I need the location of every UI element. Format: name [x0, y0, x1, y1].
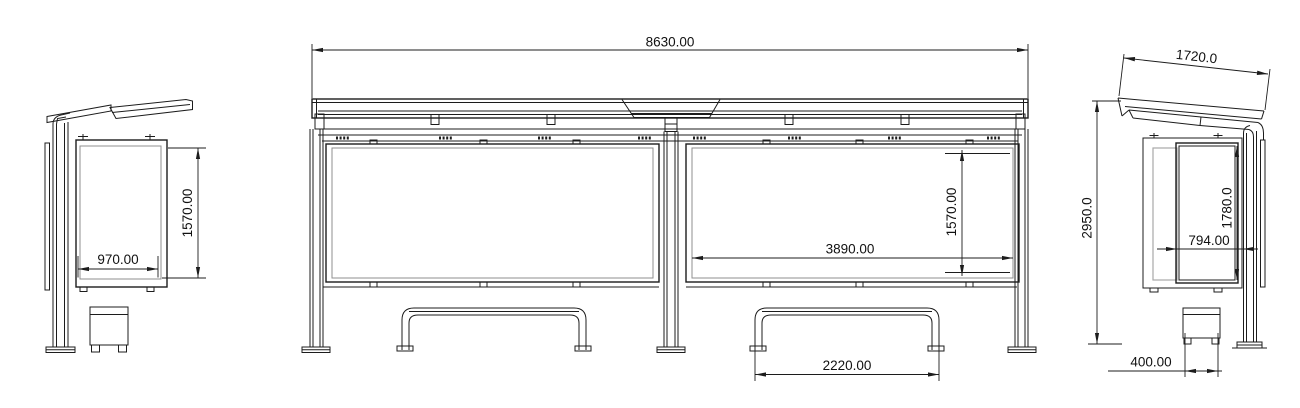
left-side-view: 970.00 1570.00 [45, 100, 206, 353]
roof-clip [547, 115, 555, 125]
technical-drawing-canvas: 970.00 1570.00 8630.00 [0, 0, 1300, 408]
dim-label: 1720.0 [1175, 47, 1218, 66]
dim-panel-height-1780: 1780.0 [1220, 146, 1240, 280]
litter-bin [90, 307, 128, 352]
support-post-right [1008, 129, 1036, 353]
roof-clip [901, 115, 909, 125]
roof-canopy [312, 99, 1028, 141]
back-panel-edge [45, 143, 50, 290]
right-side-view: 1720.0 2950.0 1780.0 794.00 [1080, 47, 1271, 377]
panel-clip [966, 282, 973, 287]
dim-label: 2220.00 [823, 358, 872, 373]
dim-label: 1570.00 [944, 188, 959, 237]
back-panel-edge [1261, 140, 1266, 287]
dim-panel-height-1570: 1570.00 [162, 148, 206, 278]
dim-label: 970.00 [97, 252, 138, 267]
panel-clip [370, 282, 377, 287]
roof-sign-mount [622, 100, 720, 132]
roof-clip [785, 115, 793, 125]
panel-clip [480, 282, 487, 287]
dim-label: 794.00 [1188, 233, 1229, 248]
bench-right [750, 308, 944, 351]
dim-glass-height-1570: 1570.00 [944, 150, 1010, 276]
support-post-center [657, 132, 685, 353]
support-post [46, 113, 75, 353]
panel-clip [856, 282, 863, 287]
dim-bench-width-2220: 2220.00 [755, 350, 939, 381]
bench-left [397, 308, 591, 351]
dim-panel-width-794: 794.00 [1157, 233, 1258, 251]
dim-label: 2950.0 [1080, 197, 1095, 238]
glass-panel-right [686, 140, 1019, 287]
panel-clip [573, 282, 580, 287]
dim-label: 1780.0 [1220, 187, 1235, 228]
dim-overall-width-8630: 8630.00 [312, 35, 1028, 99]
dim-label: 400.00 [1130, 355, 1171, 370]
dim-overall-height-2950: 2950.0 [1080, 101, 1123, 344]
roof-profile [47, 100, 193, 123]
dim-bench-depth-400: 400.00 [1108, 333, 1222, 377]
dim-label: 8630.00 [646, 35, 695, 50]
roof-profile [1118, 98, 1264, 140]
dim-label: 3890.00 [826, 242, 875, 257]
drawing-sheet: 970.00 1570.00 8630.00 [0, 0, 1300, 408]
front-elevation-view: 8630.00 [302, 35, 1036, 382]
ad-panel [76, 134, 167, 292]
bench-side [1183, 308, 1220, 344]
dim-panel-width-970: 970.00 [78, 252, 158, 278]
roof-clip [431, 115, 439, 125]
panel-clip [763, 282, 770, 287]
glass-panel-left [323, 140, 659, 287]
dim-label: 1570.00 [180, 189, 195, 238]
dim-glass-width-3890: 3890.00 [692, 242, 1013, 261]
